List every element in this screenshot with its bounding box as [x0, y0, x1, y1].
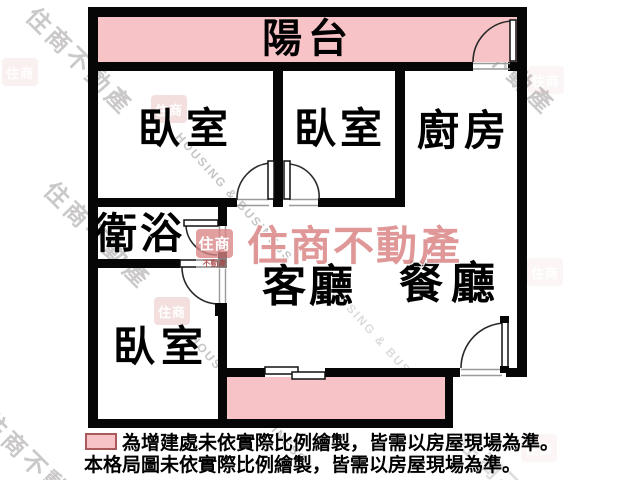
- room-label-balcony: 陽台: [262, 19, 354, 59]
- bedroom3-door-arc: [182, 267, 218, 304]
- entrance-door-leaf: [502, 322, 508, 368]
- entrance-jamb-bottom: [500, 366, 509, 373]
- bedroom3-doorway: [220, 268, 226, 304]
- room-label-bedroom-3: 臥室: [113, 326, 209, 368]
- bedroom3-door-cap: [215, 303, 227, 316]
- bedroom1-door-leaf: [268, 161, 274, 199]
- bathroom-door-leaf: [184, 220, 218, 226]
- door-jamb-caps: [215, 303, 509, 373]
- legend-line-1: 為增建處未依實際比例繪製，皆需以房屋現場為準。: [122, 434, 559, 453]
- room-label-bedroom-1: 臥室: [138, 108, 234, 150]
- bedroom2-door-leaf: [284, 161, 290, 199]
- balcony-doorway: [473, 64, 510, 70]
- bedroom1-doorway: [237, 200, 269, 206]
- balcony-door-arc: [473, 21, 512, 62]
- room-label-bathroom: 衛浴: [95, 213, 185, 255]
- sliding-door-panel-2: [292, 372, 325, 379]
- legend-line-2: 本格局圖未依實際比例繪製，皆需以房屋現場為準。: [84, 456, 521, 475]
- brand-logo-subtext: 不動產: [196, 258, 233, 269]
- entrance-door-arc: [461, 323, 506, 368]
- balcony-door-leaf: [510, 20, 516, 61]
- room-label-bedroom-2: 臥室: [294, 108, 386, 150]
- legend-addition-swatch: [85, 433, 117, 450]
- entrance-jamb-top: [500, 316, 509, 323]
- bedroom1-door-arc: [237, 163, 272, 200]
- entrance-doorway: [461, 370, 502, 376]
- brand-logo-icon: 住商: [196, 229, 233, 258]
- bedroom2-door-arc: [289, 164, 319, 200]
- floorplan-canvas: 住商不動產 住商不動產 住商不動產 住商不動產 住商不動產 HOUSING & …: [0, 0, 640, 480]
- brand-name-watermark: 住商不動產: [247, 226, 462, 267]
- bedroom2-doorway: [289, 200, 318, 206]
- door-leaves: [180, 20, 516, 379]
- door-arcs: [182, 21, 512, 368]
- room-label-kitchen: 廚房: [417, 110, 511, 152]
- room-label-living-room: 客廳: [262, 265, 356, 309]
